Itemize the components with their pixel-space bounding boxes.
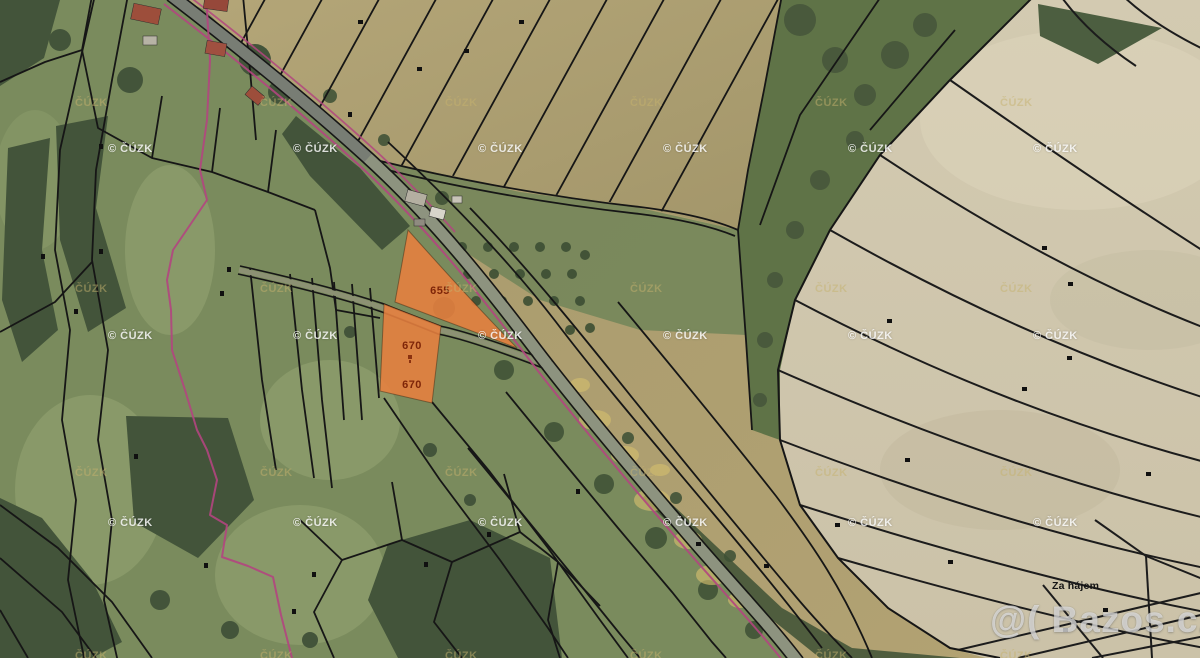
cadastral-map-screenshot: 655 670 670 Za hájem © ČÚZK© ČÚZK© ČÚZK©… [0,0,1200,658]
aerial-cadastral-map [0,0,1200,658]
